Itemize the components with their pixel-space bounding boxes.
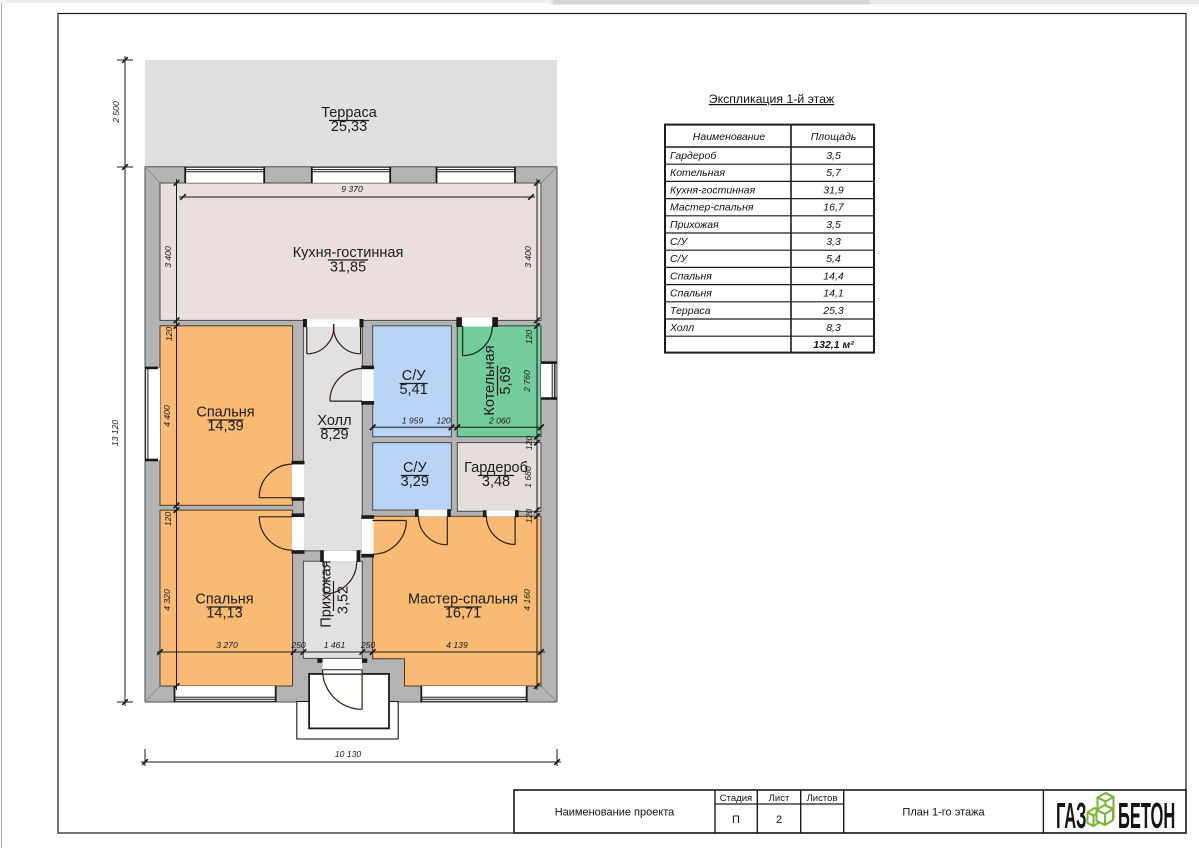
svg-text:3 400: 3 400: [163, 246, 173, 268]
svg-text:120: 120: [164, 327, 174, 342]
svg-text:120: 120: [524, 509, 534, 524]
svg-text:120: 120: [163, 512, 173, 527]
svg-text:14,4: 14,4: [823, 270, 844, 282]
svg-text:4 160: 4 160: [522, 589, 532, 611]
svg-text:Лист: Лист: [769, 793, 790, 804]
svg-text:2 760: 2 760: [522, 370, 532, 393]
svg-text:3 400: 3 400: [523, 246, 533, 268]
svg-text:5,4: 5,4: [826, 253, 841, 265]
svg-text:Листов: Листов: [807, 793, 838, 804]
svg-text:3,5: 3,5: [826, 219, 841, 231]
svg-text:120: 120: [436, 416, 451, 426]
svg-text:БЕТОН: БЕТОН: [1118, 795, 1175, 836]
svg-text:3,29: 3,29: [401, 474, 429, 490]
svg-text:14,13: 14,13: [206, 606, 242, 622]
svg-text:П: П: [732, 814, 740, 826]
svg-text:9 370: 9 370: [341, 184, 363, 194]
svg-text:16,7: 16,7: [823, 202, 845, 214]
svg-text:31,9: 31,9: [823, 184, 844, 196]
svg-text:Гардероб: Гардероб: [670, 150, 717, 162]
svg-text:Мастер-спальня: Мастер-спальня: [670, 202, 754, 214]
svg-text:Площадь: Площадь: [811, 131, 857, 143]
svg-text:120: 120: [524, 330, 534, 345]
svg-text:1 680: 1 680: [523, 466, 533, 488]
svg-text:3,52: 3,52: [336, 586, 352, 614]
svg-text:25,3: 25,3: [822, 305, 844, 317]
svg-text:10 130: 10 130: [335, 749, 362, 759]
svg-text:3,5: 3,5: [826, 150, 841, 162]
svg-text:Прихожая: Прихожая: [319, 560, 335, 627]
svg-text:25,33: 25,33: [331, 119, 367, 135]
svg-text:Экспликация 1-й этаж: Экспликация 1-й этаж: [709, 92, 835, 106]
svg-text:План 1-го этажа: План 1-го этажа: [902, 807, 985, 819]
svg-text:Терраса: Терраса: [670, 305, 711, 317]
svg-text:Спальня: Спальня: [670, 270, 712, 282]
svg-text:250: 250: [360, 640, 376, 650]
svg-text:1 461: 1 461: [324, 640, 346, 650]
svg-text:2 060: 2 060: [488, 416, 511, 426]
svg-text:4 320: 4 320: [162, 589, 172, 611]
svg-text:С/У: С/У: [670, 253, 689, 265]
svg-text:31,85: 31,85: [330, 260, 366, 276]
svg-text:Стадия: Стадия: [720, 793, 752, 804]
svg-text:16,71: 16,71: [445, 606, 481, 622]
svg-text:Холл: Холл: [669, 322, 694, 334]
svg-text:Спальня: Спальня: [670, 288, 712, 300]
svg-text:120: 120: [524, 436, 534, 451]
svg-text:14,39: 14,39: [207, 419, 243, 435]
svg-text:Котельная: Котельная: [482, 345, 498, 415]
svg-text:Котельная: Котельная: [670, 167, 725, 179]
svg-text:2 500: 2 500: [111, 101, 121, 124]
svg-text:8,3: 8,3: [826, 322, 841, 334]
svg-text:250: 250: [290, 640, 306, 650]
svg-text:4 400: 4 400: [162, 405, 172, 427]
svg-text:14,1: 14,1: [823, 288, 843, 300]
svg-text:5,69: 5,69: [498, 366, 514, 394]
svg-text:3 270: 3 270: [216, 640, 238, 650]
svg-text:2: 2: [776, 814, 782, 826]
svg-text:С/У: С/У: [670, 236, 689, 248]
svg-text:3,3: 3,3: [826, 236, 841, 248]
svg-text:13 120: 13 120: [110, 420, 120, 447]
svg-text:Прихожая: Прихожая: [670, 219, 719, 231]
svg-text:5,7: 5,7: [826, 167, 842, 179]
svg-text:3,48: 3,48: [482, 474, 510, 490]
svg-text:132,1 м²: 132,1 м²: [813, 339, 854, 351]
svg-text:5,41: 5,41: [399, 382, 427, 398]
svg-text:Наименование проекта: Наименование проекта: [555, 807, 675, 819]
svg-text:8,29: 8,29: [320, 427, 348, 443]
svg-text:4 139: 4 139: [446, 640, 468, 650]
svg-text:Наименование: Наименование: [693, 131, 766, 143]
svg-text:ГАЗ: ГАЗ: [1056, 795, 1087, 836]
svg-text:1 959: 1 959: [402, 416, 424, 426]
svg-text:Кухня-гостинная: Кухня-гостинная: [670, 184, 756, 196]
